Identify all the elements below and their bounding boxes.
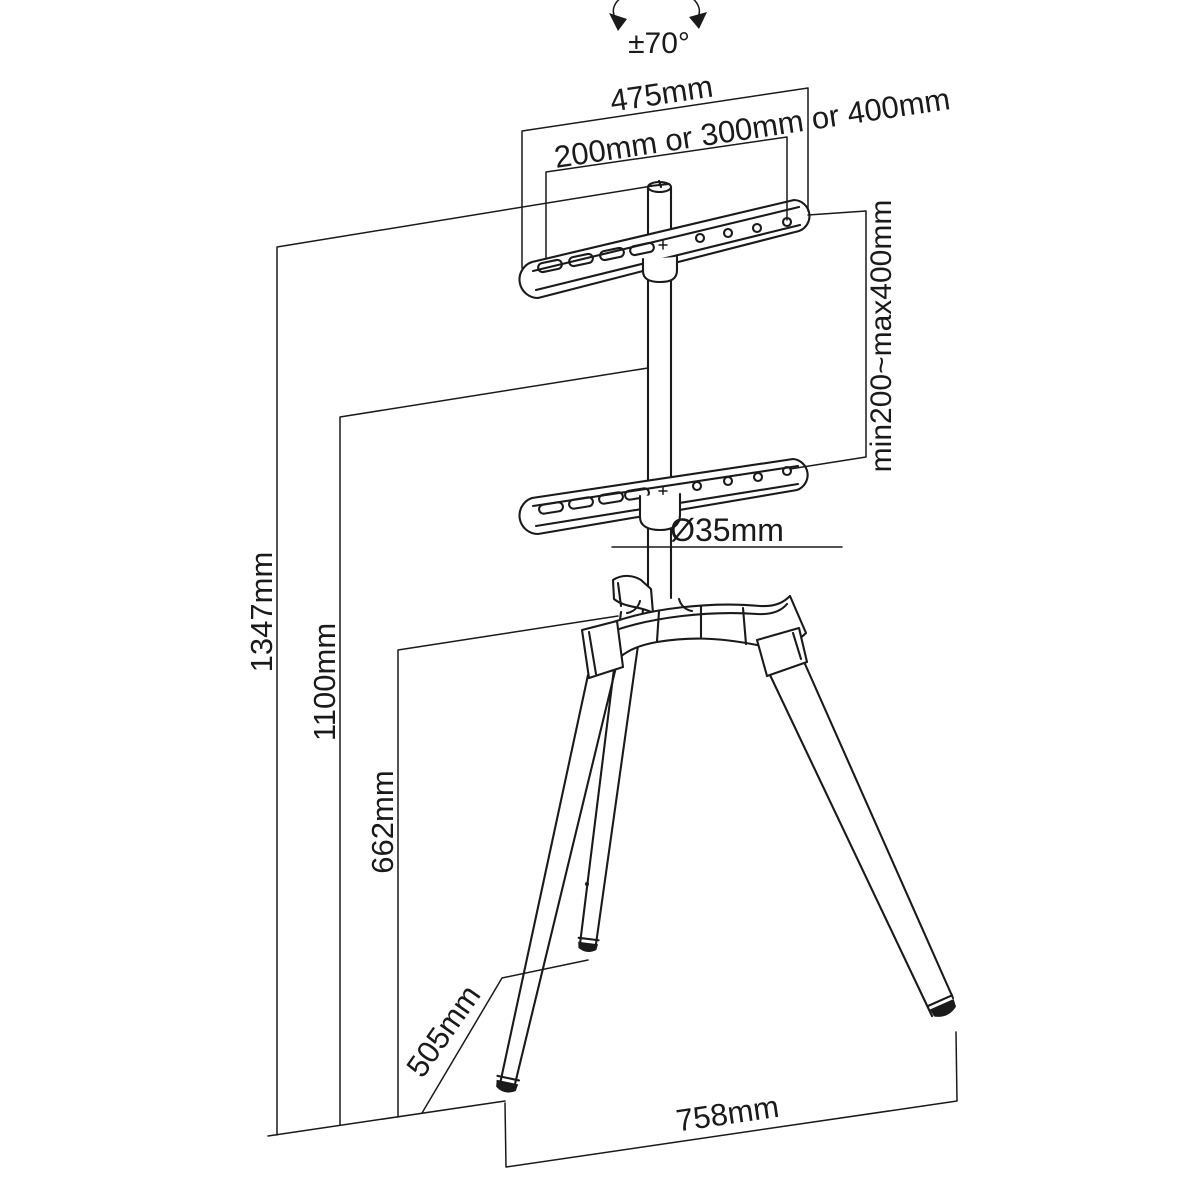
column-height-label: 1100mm [307,623,342,741]
floor-line [268,1101,505,1136]
diagram-canvas: ±70° 475mm 200mm or 300mm or 400mm min20… [0,0,1200,1200]
total-height-label: 1347mm [244,552,279,673]
base-width-dim: 758mm [505,1032,957,1167]
tv-stand-dimension-diagram: ±70° 475mm 200mm or 300mm or 400mm min20… [0,0,1200,1200]
left-leg-clamp [582,621,623,678]
vesa-height-lines [790,211,866,469]
base-depth-dim: 505mm [399,960,588,1113]
right-foot [928,995,958,1020]
top-bracket-collar [643,257,677,282]
tilt-angle-callout: ±70° [609,0,707,60]
hub-height-dim: 662mm [365,616,618,1117]
base-width-label: 758mm [674,1089,781,1139]
bracket-width-label: 475mm [608,69,715,119]
tilt-angle-label: ±70° [628,27,690,60]
front-left-foot [494,1076,519,1095]
vesa-height-dim: min200~max400mm [790,200,898,473]
column-height-lines [340,368,648,1125]
back-leg-pin [585,882,589,886]
tilt-arc [613,0,699,24]
front-left-leg [500,667,616,1084]
tilt-arrow-left-icon [609,13,627,31]
right-leg [770,664,953,1016]
tripod-hub [582,576,807,678]
legs [494,610,958,1095]
pole-diameter-label: Ø35mm [670,512,784,548]
dimensions: ±70° 475mm 200mm or 300mm or 400mm min20… [244,0,957,1167]
hub-height-label: 662mm [365,770,400,873]
base-depth-label: 505mm [399,979,487,1084]
vesa-height-label: min200~max400mm [865,200,898,473]
tilt-arrow-right-icon [689,12,707,29]
